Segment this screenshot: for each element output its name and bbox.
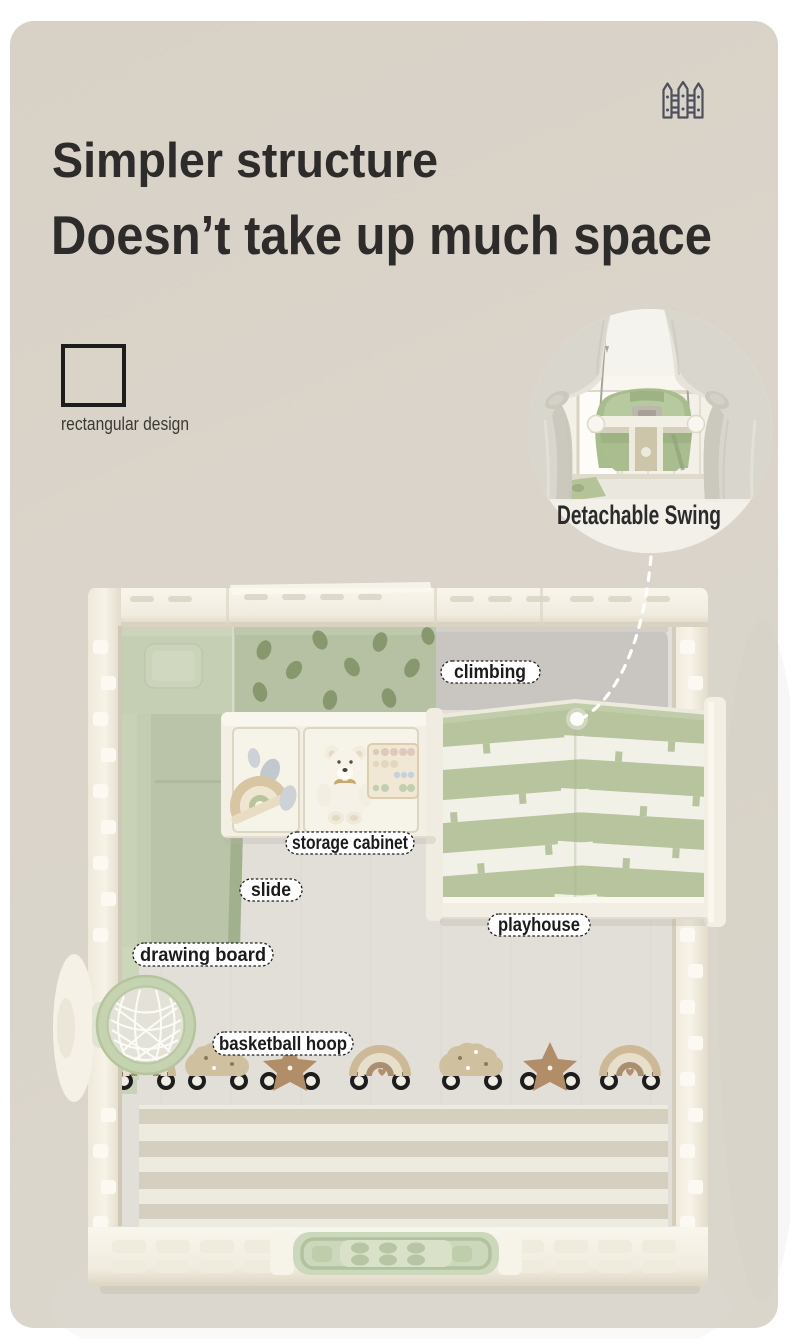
svg-text:drawing board: drawing board [140,945,266,966]
svg-text:playhouse: playhouse [498,915,580,936]
svg-text:climbing: climbing [454,662,526,683]
svg-text:slide: slide [251,880,291,901]
svg-text:basketball hoop: basketball hoop [219,1034,347,1055]
svg-text:Doesn’t take up much space: Doesn’t take up much space [51,204,712,266]
svg-text:storage cabinet: storage cabinet [292,833,409,854]
svg-text:Detachable Swing: Detachable Swing [557,500,721,530]
svg-text:Simpler structure: Simpler structure [52,134,438,188]
svg-text:rectangular design: rectangular design [61,414,189,434]
